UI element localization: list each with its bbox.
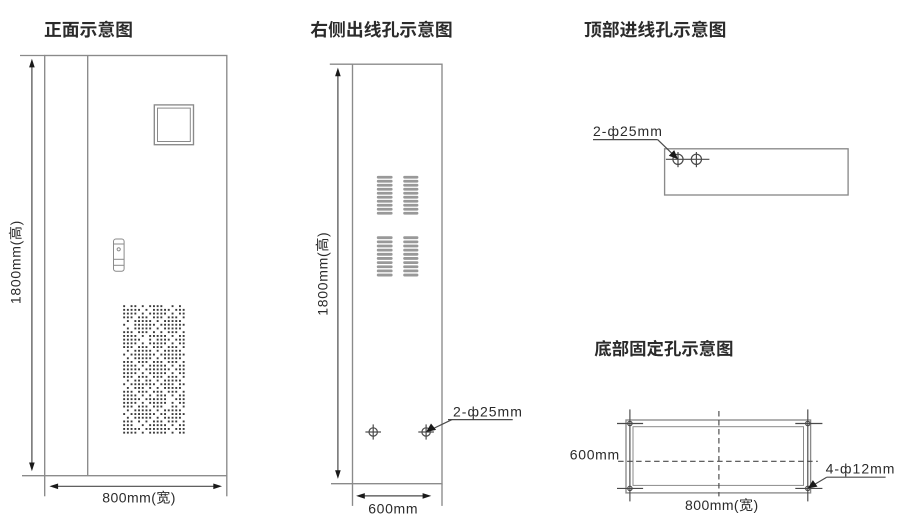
svg-text:1800mm(: 1800mm( — [314, 252, 330, 316]
svg-text:): ) — [171, 490, 176, 506]
svg-text:): ) — [8, 221, 24, 226]
svg-text:1800mm(: 1800mm( — [8, 240, 24, 304]
svg-text:800mm(: 800mm( — [685, 497, 739, 513]
svg-text:600mm: 600mm — [570, 447, 620, 463]
svg-text:): ) — [753, 497, 758, 513]
svg-text:2-ф25mm: 2-ф25mm — [453, 404, 523, 420]
svg-text:): ) — [314, 232, 330, 237]
svg-text:800mm(: 800mm( — [102, 490, 156, 506]
svg-text:4-ф12mm: 4-ф12mm — [826, 460, 896, 476]
svg-text:600mm: 600mm — [368, 501, 418, 517]
svg-text:2-ф25mm: 2-ф25mm — [593, 123, 663, 139]
